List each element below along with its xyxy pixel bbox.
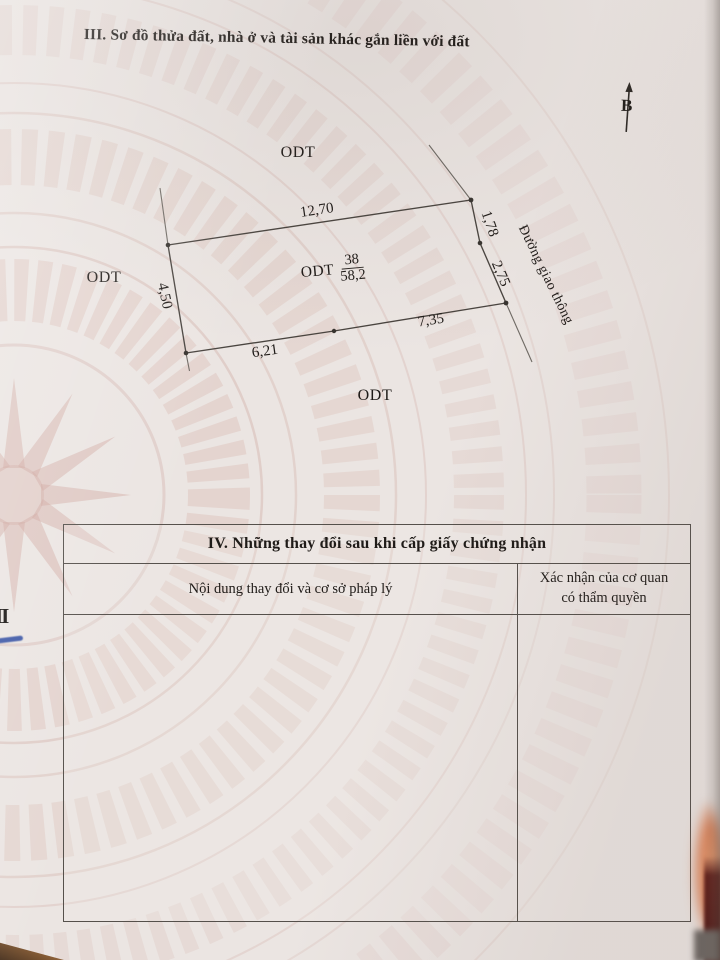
parcel-zone: ODT (300, 261, 335, 282)
parcel-number-area-fraction: 38 58,2 (336, 251, 368, 285)
changes-table-title: IV. Những thay đổi sau khi cấp giấy chứn… (64, 525, 690, 564)
changes-table-header-row: Nội dung thay đổi và cơ sở pháp lý Xác n… (64, 564, 690, 615)
north-arrow: B (611, 79, 647, 138)
dimension-left: 4,50 (153, 281, 175, 310)
dimension-bottom-right: 7,35 (417, 311, 446, 332)
table-cell-change-content (64, 615, 518, 921)
changes-table: IV. Những thay đổi sau khi cấp giấy chứn… (63, 524, 691, 922)
background-corner (694, 930, 720, 960)
certificate-page: III. Sơ đồ thửa đất, nhà ở và tài sản kh… (0, 0, 720, 960)
dimension-right-lower: 2,75 (487, 259, 513, 290)
zone-label-top: ODT (281, 144, 316, 162)
north-label: B (621, 96, 634, 116)
dimension-top: 12,70 (299, 200, 335, 222)
zone-label-left: ODT (87, 269, 122, 287)
column-header-authority-confirmation-text: Xác nhận của cơ quan có thẩm quyền (538, 569, 670, 608)
road-name-label: Đường giao thông (514, 223, 576, 328)
section-iii-title: III. Sơ đồ thửa đất, nhà ở và tài sản kh… (84, 26, 470, 51)
parcel-area: 58,2 (338, 268, 369, 286)
column-header-change-content: Nội dung thay đổi và cơ sở pháp lý (64, 564, 518, 614)
column-header-authority-confirmation: Xác nhận của cơ quan có thẩm quyền (518, 564, 690, 614)
changes-table-body (64, 615, 690, 921)
parcel-center-label: ODT 38 58,2 (300, 251, 369, 288)
table-surface-corner (0, 928, 64, 960)
dimension-bottom-left: 6,21 (251, 342, 279, 362)
edge-ink-mark: II (0, 604, 7, 629)
dimension-right-upper: 1,78 (477, 209, 502, 239)
table-cell-authority-confirmation (518, 615, 690, 921)
edge-blue-pen-mark (0, 635, 23, 643)
zone-label-bottom: ODT (358, 387, 393, 405)
